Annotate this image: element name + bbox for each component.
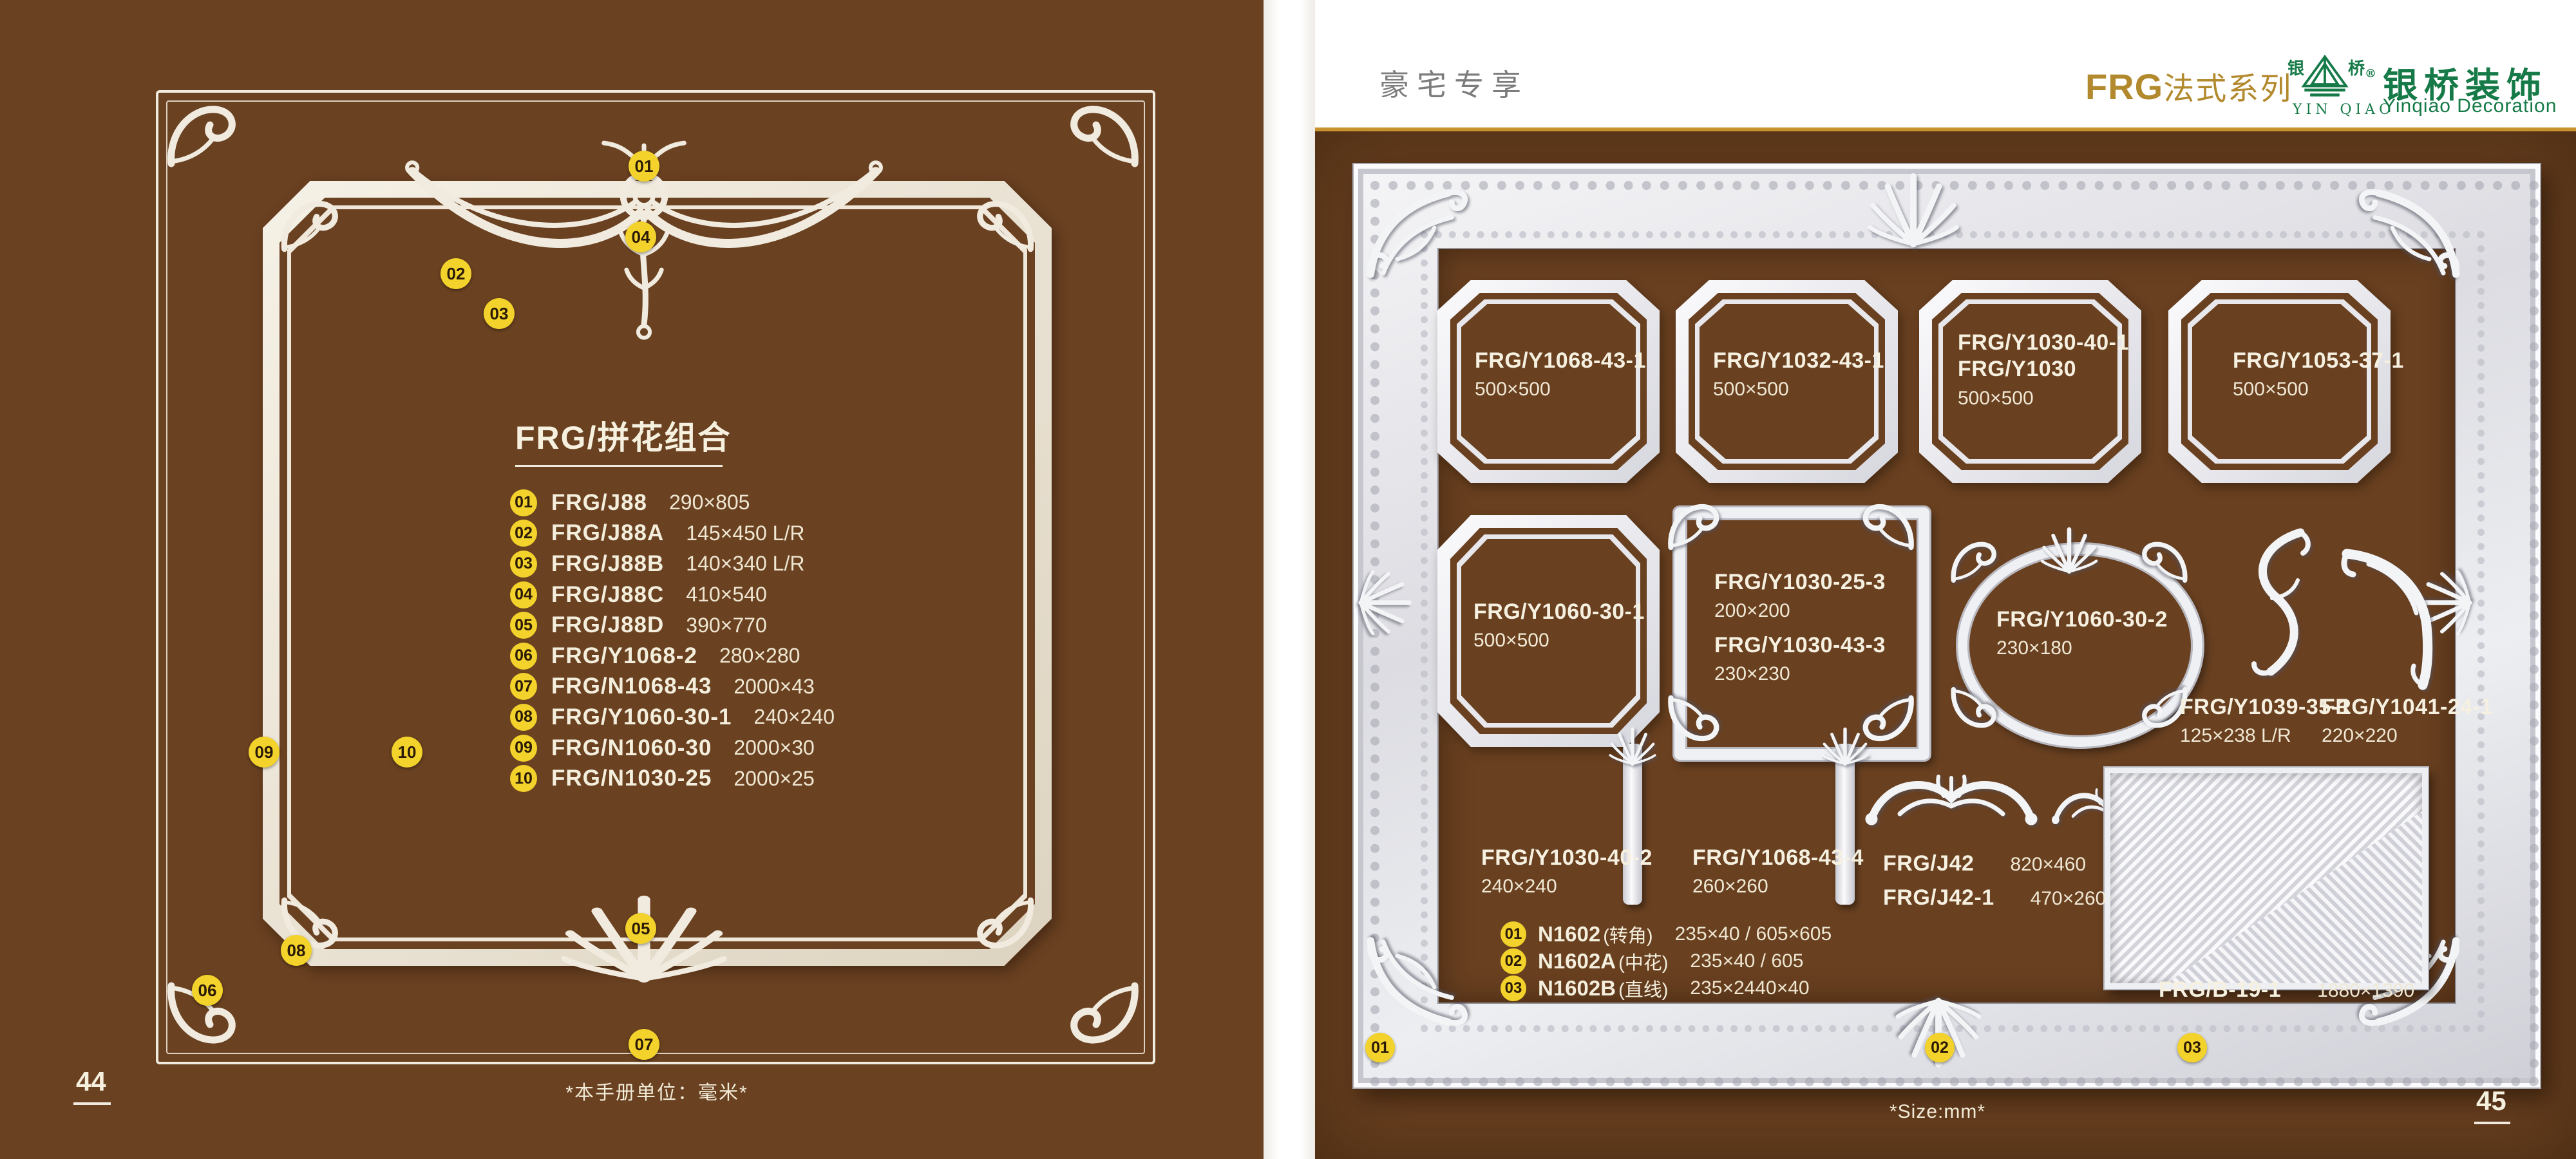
item-size: 235×2440×40 (1690, 977, 1809, 999)
item-code: FRG/N1060-30 (551, 735, 712, 761)
item-code: FRG/Y1060-30-1 (551, 704, 732, 730)
title-underline (515, 465, 723, 467)
diagram-badge: 02 (440, 258, 471, 289)
diagram-badge: 09 (249, 737, 279, 768)
logo-char-left: 银 (2287, 55, 2304, 79)
list-item: 06FRG/Y1068-2280×280 (510, 643, 835, 670)
item-code: FRG/J88 (551, 490, 647, 516)
logo-char-right: 桥 (2348, 55, 2365, 79)
diagram-badge: 05 (625, 913, 656, 944)
list-item: 07FRG/N1068-432000×43 (510, 673, 835, 700)
list-item: 02N1602A(中花)235×40 / 605 (1501, 948, 1832, 975)
page-title: FRG/拼花组合 (515, 412, 731, 458)
item-code: N1602B (1538, 976, 1616, 1001)
list-item: 09FRG/N1060-302000×30 (510, 735, 835, 762)
list-item: 03N1602B(直线)235×2440×40 (1501, 975, 1832, 1002)
item-size: 2000×25 (734, 767, 814, 791)
tagline: 豪宅专享 (1379, 62, 1529, 104)
product-label: FRG/Y1068-43-1500×500 (1475, 348, 1646, 402)
item-size: 240×240 (754, 705, 835, 729)
page-gutter (1264, 0, 1315, 1159)
registered-mark-icon: ® (2365, 67, 2376, 80)
diagram-badge: 10 (392, 737, 422, 768)
product-list: 01FRG/J88290×805 02FRG/J88A145×450 L/R 0… (510, 487, 835, 794)
item-number-badge: 04 (510, 581, 537, 608)
list-item: 02FRG/J88A145×450 L/R (510, 520, 835, 547)
item-number-badge: 08 (510, 704, 537, 731)
item-number-badge: 03 (510, 551, 537, 578)
item-code: N1602 (1538, 922, 1600, 947)
series-title: FRG法式系列 (2085, 63, 2292, 108)
product-label: FRG/J42820×460 (1883, 851, 2086, 876)
item-number-badge: 01 (510, 489, 537, 516)
item-number-badge: 02 (510, 520, 537, 547)
item-size: 145×450 L/R (686, 522, 804, 545)
diagram-badge: 07 (629, 1029, 659, 1060)
product-label: FRG/Y1030-25-3200×200 (1714, 569, 1886, 623)
band-badge: 02 (1925, 1033, 1955, 1062)
product-label: FRG/Y1030-40-1FRG/Y1030500×500 (1958, 330, 2129, 411)
item-type: (转角) (1603, 921, 1653, 948)
item-code: FRG/Y1068-2 (551, 643, 697, 669)
list-item: 05FRG/J88D390×770 (510, 612, 835, 639)
band-badge: 01 (1365, 1033, 1395, 1062)
item-number-badge: 07 (510, 673, 537, 700)
item-number-badge: 06 (510, 643, 537, 670)
item-code: FRG/J88B (551, 551, 664, 577)
list-item: 08FRG/Y1060-30-1240×240 (510, 704, 835, 731)
item-code: FRG/J88A (551, 520, 664, 546)
item-number-badge: 01 (1501, 921, 1526, 947)
page-number-right: 45 (2476, 1086, 2506, 1117)
page-number-underline (73, 1102, 111, 1105)
product-label: FRG/Y1068-43-4260×260 (1692, 845, 1864, 899)
list-item: 04FRG/J88C410×540 (510, 581, 835, 608)
item-code: FRG/J88C (551, 582, 664, 608)
product-label: FRG/Y1032-43-1500×500 (1713, 348, 1884, 402)
item-size: 140×340 L/R (686, 552, 804, 576)
item-size: 290×805 (669, 491, 750, 514)
product-label: FRG/Y1030-43-3230×230 (1714, 632, 1886, 686)
product-label: FRG/B-19-11880×1390 (2159, 977, 2414, 1003)
page-number-underline (2474, 1122, 2510, 1124)
product-label: FRG/Y1041-24-1220×220 (2322, 694, 2493, 748)
item-size: 2000×43 (734, 675, 814, 699)
item-number-badge: 05 (510, 612, 537, 639)
diagram-badge: 03 (484, 298, 515, 329)
molding-list: 01N1602(转角)235×40 / 605×605 02N1602A(中花)… (1501, 921, 1832, 1002)
list-item: 10FRG/N1030-252000×25 (510, 765, 835, 792)
item-number-badge: 02 (1501, 948, 1526, 974)
list-item: 03FRG/J88B140×340 L/R (510, 551, 835, 578)
item-size: 280×280 (719, 644, 800, 668)
item-size: 235×40 / 605 (1690, 950, 1803, 972)
list-item: 01N1602(转角)235×40 / 605×605 (1501, 921, 1832, 948)
diagram-badge: 04 (625, 221, 656, 252)
item-code: FRG/J88D (551, 612, 664, 638)
unit-note: *本手册单位：毫米* (489, 1077, 824, 1105)
list-item: 01FRG/J88290×805 (510, 489, 835, 516)
diagram-badge: 01 (629, 151, 659, 182)
item-size: 390×770 (686, 614, 766, 637)
item-number-badge: 03 (1501, 975, 1526, 1001)
product-label: FRG/Y1060-30-1500×500 (1473, 599, 1645, 653)
logo-roman-text: YIN QIAO (2293, 102, 2394, 118)
item-size: 2000×30 (734, 736, 814, 760)
item-code: N1602A (1538, 949, 1616, 974)
product-label: FRG/Y1060-30-2230×180 (1996, 607, 2168, 661)
diagram-badge: 06 (192, 975, 223, 1006)
page-number-left: 44 (76, 1066, 106, 1097)
item-type: (直线) (1618, 975, 1668, 1002)
item-type: (中花) (1618, 948, 1668, 975)
diagram-badge: 08 (281, 935, 312, 966)
size-note: *Size:mm* (1889, 1101, 1985, 1123)
ribbed-panel (2105, 768, 2428, 989)
item-code: FRG/N1068-43 (551, 674, 712, 699)
band-badge: 03 (2177, 1033, 2207, 1062)
logo-english-text: Yinqiao Decoration (2383, 95, 2557, 117)
product-label: FRG/Y1030-40-2240×240 (1481, 845, 1653, 899)
item-code: FRG/N1030-25 (551, 766, 712, 791)
product-label: FRG/J42-1470×260 (1883, 885, 2106, 910)
item-number-badge: 09 (510, 735, 537, 762)
item-number-badge: 10 (510, 765, 537, 792)
item-size: 410×540 (686, 583, 766, 607)
product-label: FRG/Y1053-37-1500×500 (2233, 348, 2404, 402)
item-size: 235×40 / 605×605 (1675, 923, 1832, 945)
catalog-spread: 01 02 03 04 05 06 07 08 09 10 FRG/拼花组合 0… (0, 0, 2576, 1159)
